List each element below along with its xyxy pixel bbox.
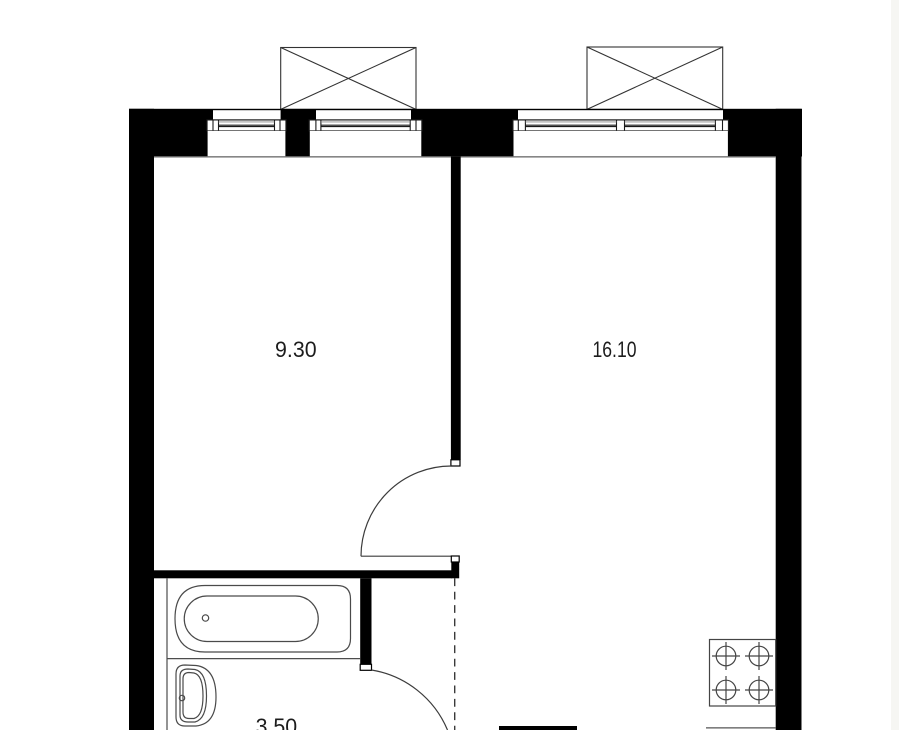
svg-text:3.50: 3.50 xyxy=(256,714,298,730)
svg-text:16.10: 16.10 xyxy=(593,337,637,362)
svg-text:9.30: 9.30 xyxy=(275,337,317,362)
